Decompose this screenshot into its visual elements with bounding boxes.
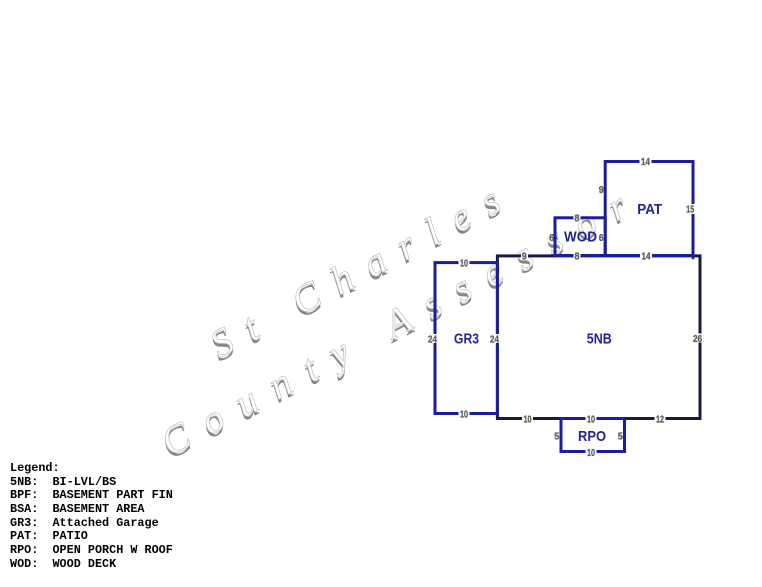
svg-text:10: 10 (460, 408, 468, 420)
svg-text:15: 15 (686, 203, 694, 215)
svg-text:10: 10 (524, 413, 532, 425)
svg-text:8: 8 (575, 212, 580, 224)
svg-text:6: 6 (599, 232, 604, 244)
svg-text:9: 9 (599, 184, 604, 196)
svg-text:8: 8 (575, 250, 580, 262)
svg-text:5: 5 (618, 430, 623, 442)
svg-text:12: 12 (656, 413, 664, 425)
svg-text:10: 10 (460, 257, 468, 269)
svg-text:5: 5 (554, 430, 559, 442)
svg-text:5NB: 5NB (587, 331, 612, 348)
svg-text:10: 10 (587, 413, 595, 425)
svg-text:24: 24 (490, 333, 499, 345)
svg-text:10: 10 (587, 447, 595, 459)
svg-text:26: 26 (693, 333, 702, 345)
svg-text:PAT: PAT (637, 201, 662, 218)
svg-text:14: 14 (642, 250, 651, 262)
svg-text:6: 6 (549, 232, 554, 244)
svg-text:24: 24 (428, 333, 437, 345)
svg-text:14: 14 (641, 156, 650, 168)
svg-text:9: 9 (522, 250, 527, 262)
svg-text:WOD: WOD (564, 228, 597, 245)
svg-text:RPO: RPO (578, 428, 606, 445)
svg-text:GR3: GR3 (454, 330, 479, 347)
